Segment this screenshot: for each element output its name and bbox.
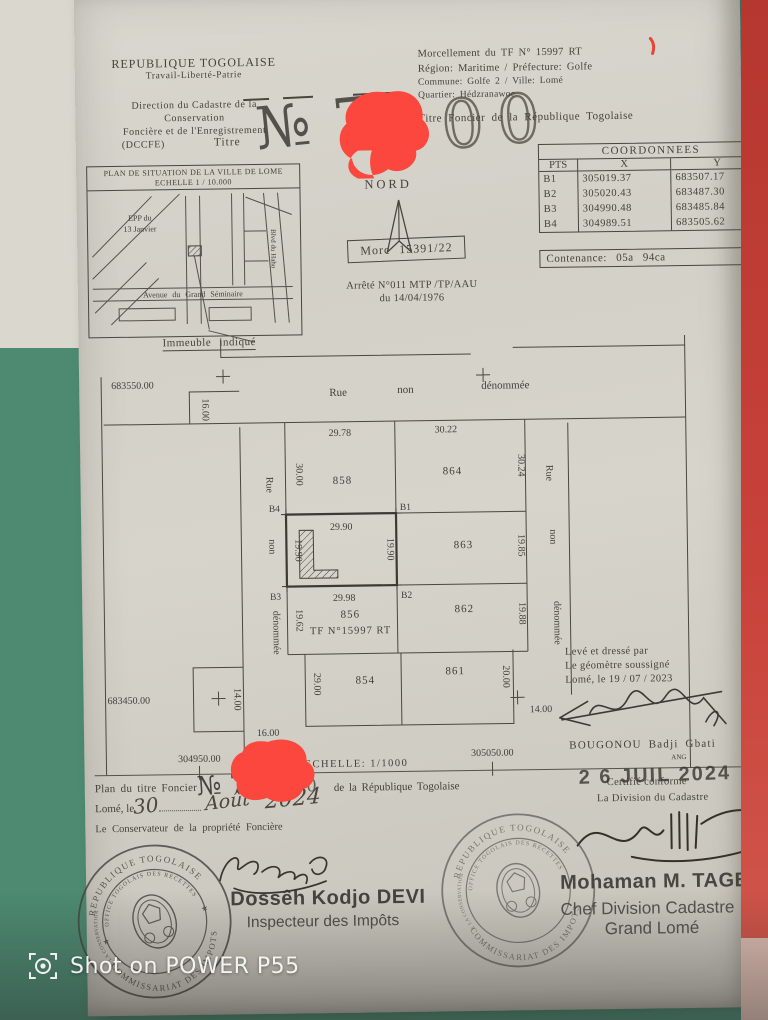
street-left-word3: dénommée [270,611,282,656]
document-sheet: REPUBLIQUE TOGOLAISE Travail-Liberté-Pat… [0,0,768,1020]
corner-b1: B1 [400,503,411,513]
dim-1600-top: 16.00 [199,398,210,421]
footer-plan-suffix: de la République Togolaise [334,780,460,794]
street-top-word3: dénommée [481,379,530,392]
camera-watermark: Shot on POWER P55 [28,951,300,981]
col-header-pts: PTS [539,160,578,172]
red-object-edge [741,0,768,942]
grid-ref-nw: 683550.00 [111,380,154,392]
grid-ref-s-right: 305050.00 [471,747,514,759]
handwritten-day: 30 [132,792,160,818]
footer-city-label: Lomé, le [95,803,134,816]
right-signatory-title2: Grand Lomé [605,918,700,939]
arrete-line1: Arrêté N°011 MTP /TP/AAU [332,279,492,294]
dim-3024: 30.24 [515,454,526,477]
table-row: B4 304989.51 683505.62 [540,214,764,232]
contenance-box: Contenance: 05a 94ca [539,247,765,268]
parcel-863: 863 [454,539,474,551]
street-right-word2: non [547,529,558,544]
situation-map-title: PLAN DE SITUATION DE LA VILLE DE LOME EC… [87,164,299,191]
dim-1400-right: 14.00 [530,704,553,715]
photographed-document: REPUBLIQUE TOGOLAISE Travail-Liberté-Pat… [0,0,768,1020]
pt-x: 305020.43 [578,185,671,201]
grid-ref-s-left: 304950.00 [178,754,221,766]
pt-x: 305019.37 [578,170,671,187]
parcel-861: 861 [445,665,465,677]
corner-b3: B3 [270,593,281,603]
subject-tf-label: TF N°15997 RT [310,625,391,637]
pt-label: B1 [539,171,578,187]
dim-1400-left: 14.00 [231,688,242,711]
dim-subject-bottom: 29.98 [333,593,356,604]
surveyor-block: Levé et dressé par Le géomètre soussigné… [565,644,673,687]
left-signatory-title: Inspecteur des Impôts [247,912,400,932]
dim-2000: 20.00 [500,665,511,688]
dim-2978: 29.78 [329,428,352,439]
certification-date-stamp: 2 6 JUIL 2024 [578,762,731,790]
dim-3022: 30.22 [434,424,457,435]
corner-b2: B2 [401,591,412,601]
dim-subject-left: 19.90 [292,539,303,562]
pt-label: B4 [540,217,579,233]
street-top-word1: Rue [329,387,347,399]
arrete-line2: du 14/04/1976 [332,291,492,306]
pt-label: B2 [539,187,578,203]
dim-3000: 30.00 [293,463,304,486]
red-object-edge-lower [741,938,768,1020]
dim-1988: 19.88 [516,602,527,625]
dim-subject-top: 29.90 [330,522,353,533]
map-label-blvd: Blvd du Haho [269,229,278,269]
street-right-word1: Rue [543,465,554,482]
street-left-word2: non [266,539,277,554]
map-label-epp2: 13 Janvier [123,224,157,233]
red-redaction-blob-bottom [228,737,323,806]
stamp-star-left: ★ [101,936,111,947]
subject-building-footprint [299,530,338,579]
red-redaction-blob-top [335,87,440,182]
grid-ref-sw: 683450.00 [108,696,151,708]
surveyor-name: BOUGONOU Badji Gbati [569,738,716,752]
map-label-epp: EPP du [128,213,152,222]
surveyor-signature [553,681,750,740]
surveyor-line2: Le géomètre soussigné [565,658,673,673]
morcellement-reference-box: Morc 15391/22 [347,236,466,264]
coordinates-table: COORDONNEES PTS X Y B1 305019.37 683507.… [538,141,765,233]
quartier-line: Quartier: Hédzranawoe [418,86,633,101]
corner-note: ANG [671,753,686,761]
parcel-862: 862 [454,603,474,615]
parcel-858: 858 [333,475,353,487]
titre-foncier-line: Titre Foncier de la République Togolaise [418,109,633,126]
situation-map-sketch: EPP du 13 Janvier Avenue du Grand Sémina… [87,188,297,331]
pt-label: B3 [540,202,579,218]
parcel-856: 856 [341,609,361,621]
chef-division-signature [573,801,768,876]
camera-viewfinder-icon [28,951,58,981]
street-left-word1: Rue [263,477,274,494]
parcel-854: 854 [355,674,375,686]
street-right-word3: dénommée [551,601,563,646]
corner-b4: B4 [269,505,280,515]
dim-2900: 29.00 [311,673,322,696]
pt-x: 304989.51 [578,215,671,231]
arrete-reference: Arrêté N°011 MTP /TP/AAU du 14/04/1976 [332,279,492,306]
dim-1985: 19.85 [515,534,526,557]
parcel-864: 864 [443,465,463,477]
situation-map-inset: PLAN DE SITUATION DE LA VILLE DE LOME EC… [86,163,302,338]
titre-label: Titre [214,136,241,148]
surveyor-line1: Levé et dressé par [565,644,673,659]
watermark-text: Shot on POWER P55 [70,954,300,979]
stamp-star-right: ★ [200,903,210,914]
pt-x: 304990.48 [578,200,671,216]
dim-1962: 19.62 [293,609,304,632]
red-pen-tick [646,36,662,56]
map-label-avenue: Avenue du Grand Séminaire [143,289,243,299]
subject-block-marker [188,246,201,256]
parcel-identification-block: Morcellement du TF N° 15997 RT Région: M… [417,45,633,126]
left-signatory-name: Dossêh Kodjo DEVI [230,886,426,912]
street-top-word2: non [397,384,414,396]
dim-subject-right: 19.90 [384,538,395,561]
